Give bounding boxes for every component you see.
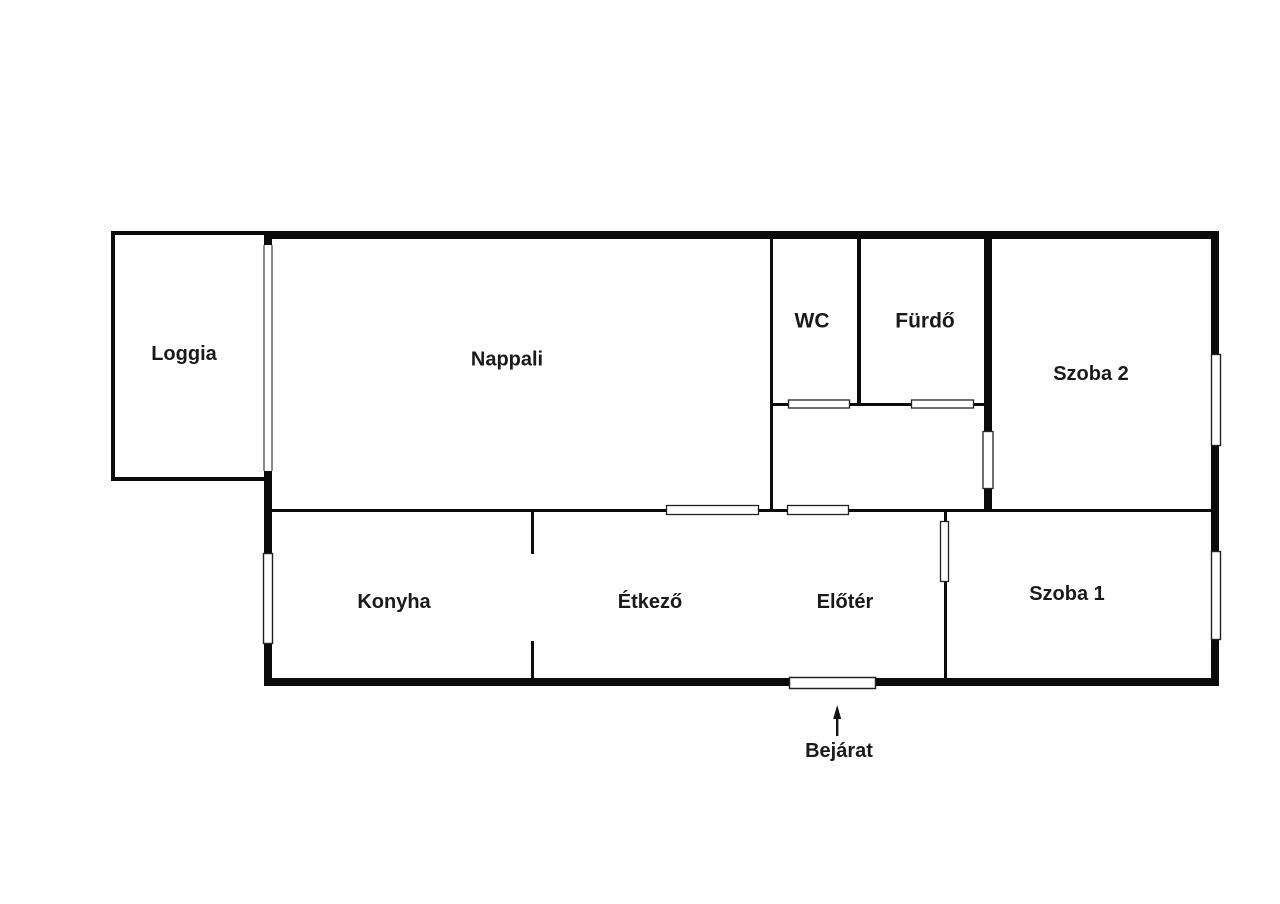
svg-text:Előtér: Előtér	[817, 591, 874, 613]
svg-text:WC: WC	[795, 310, 830, 333]
svg-text:Nappali: Nappali	[471, 349, 543, 371]
svg-text:Loggia: Loggia	[151, 343, 217, 365]
svg-text:Fürdő: Fürdő	[895, 310, 954, 333]
svg-text:Szoba 2: Szoba 2	[1053, 363, 1129, 385]
svg-text:Bejárat: Bejárat	[805, 740, 873, 762]
svg-text:Étkező: Étkező	[618, 590, 682, 613]
svg-text:Konyha: Konyha	[357, 591, 431, 613]
svg-text:Szoba 1: Szoba 1	[1029, 583, 1105, 605]
